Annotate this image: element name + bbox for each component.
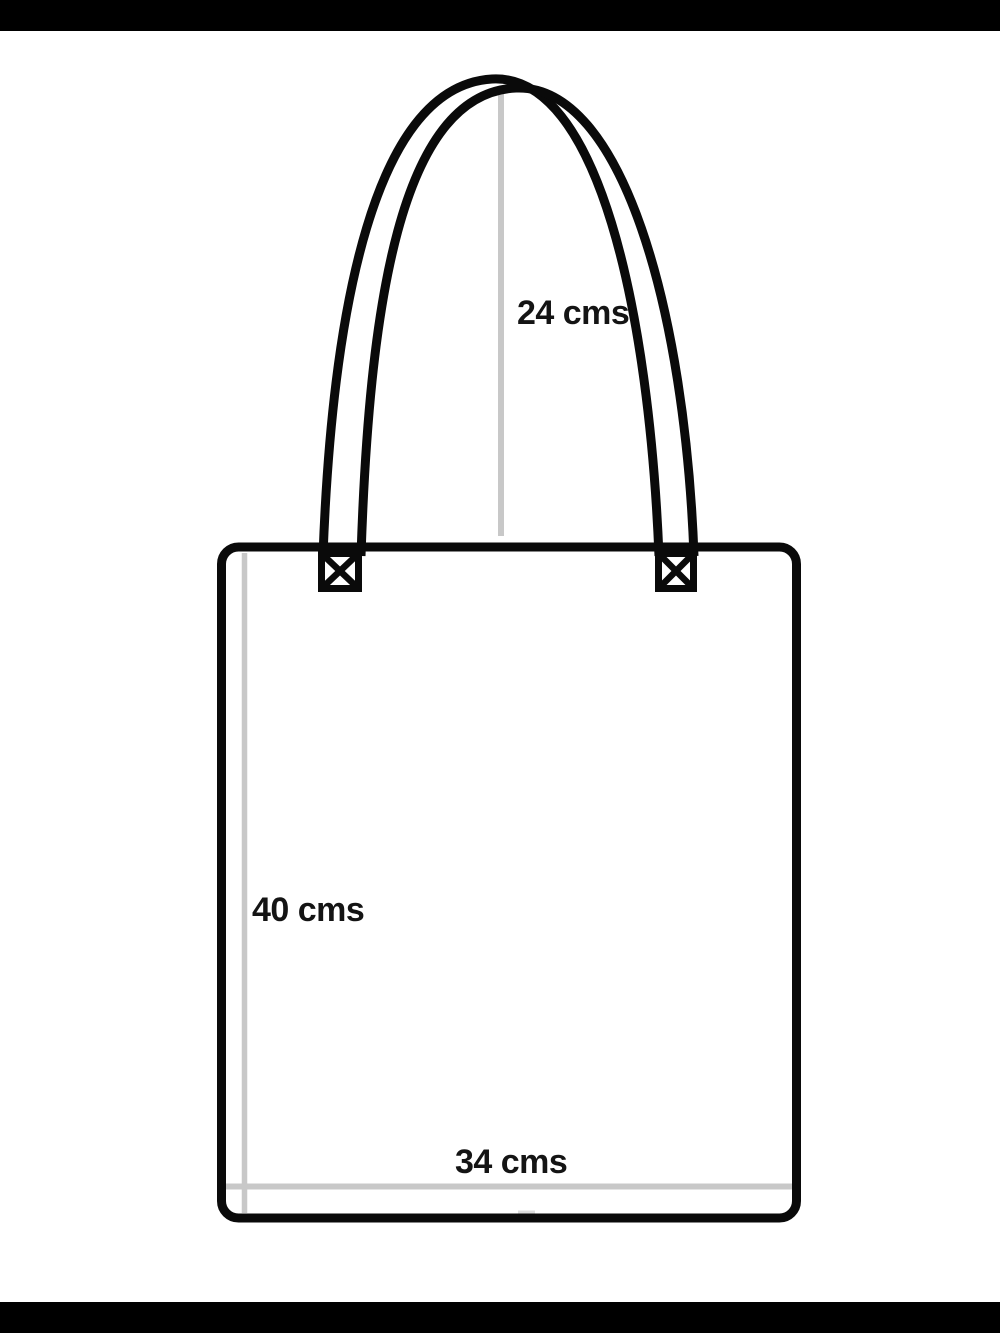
bag-width-label: 34 cms [455, 1145, 567, 1179]
tote-bag-diagram [0, 0, 1000, 1333]
bag-height-label: 40 cms [252, 893, 364, 927]
handle-height-label: 24 cms [517, 296, 629, 330]
bag-body-outline [222, 547, 797, 1218]
diagram-canvas: 24 cms 40 cms 34 cms [0, 0, 1000, 1333]
